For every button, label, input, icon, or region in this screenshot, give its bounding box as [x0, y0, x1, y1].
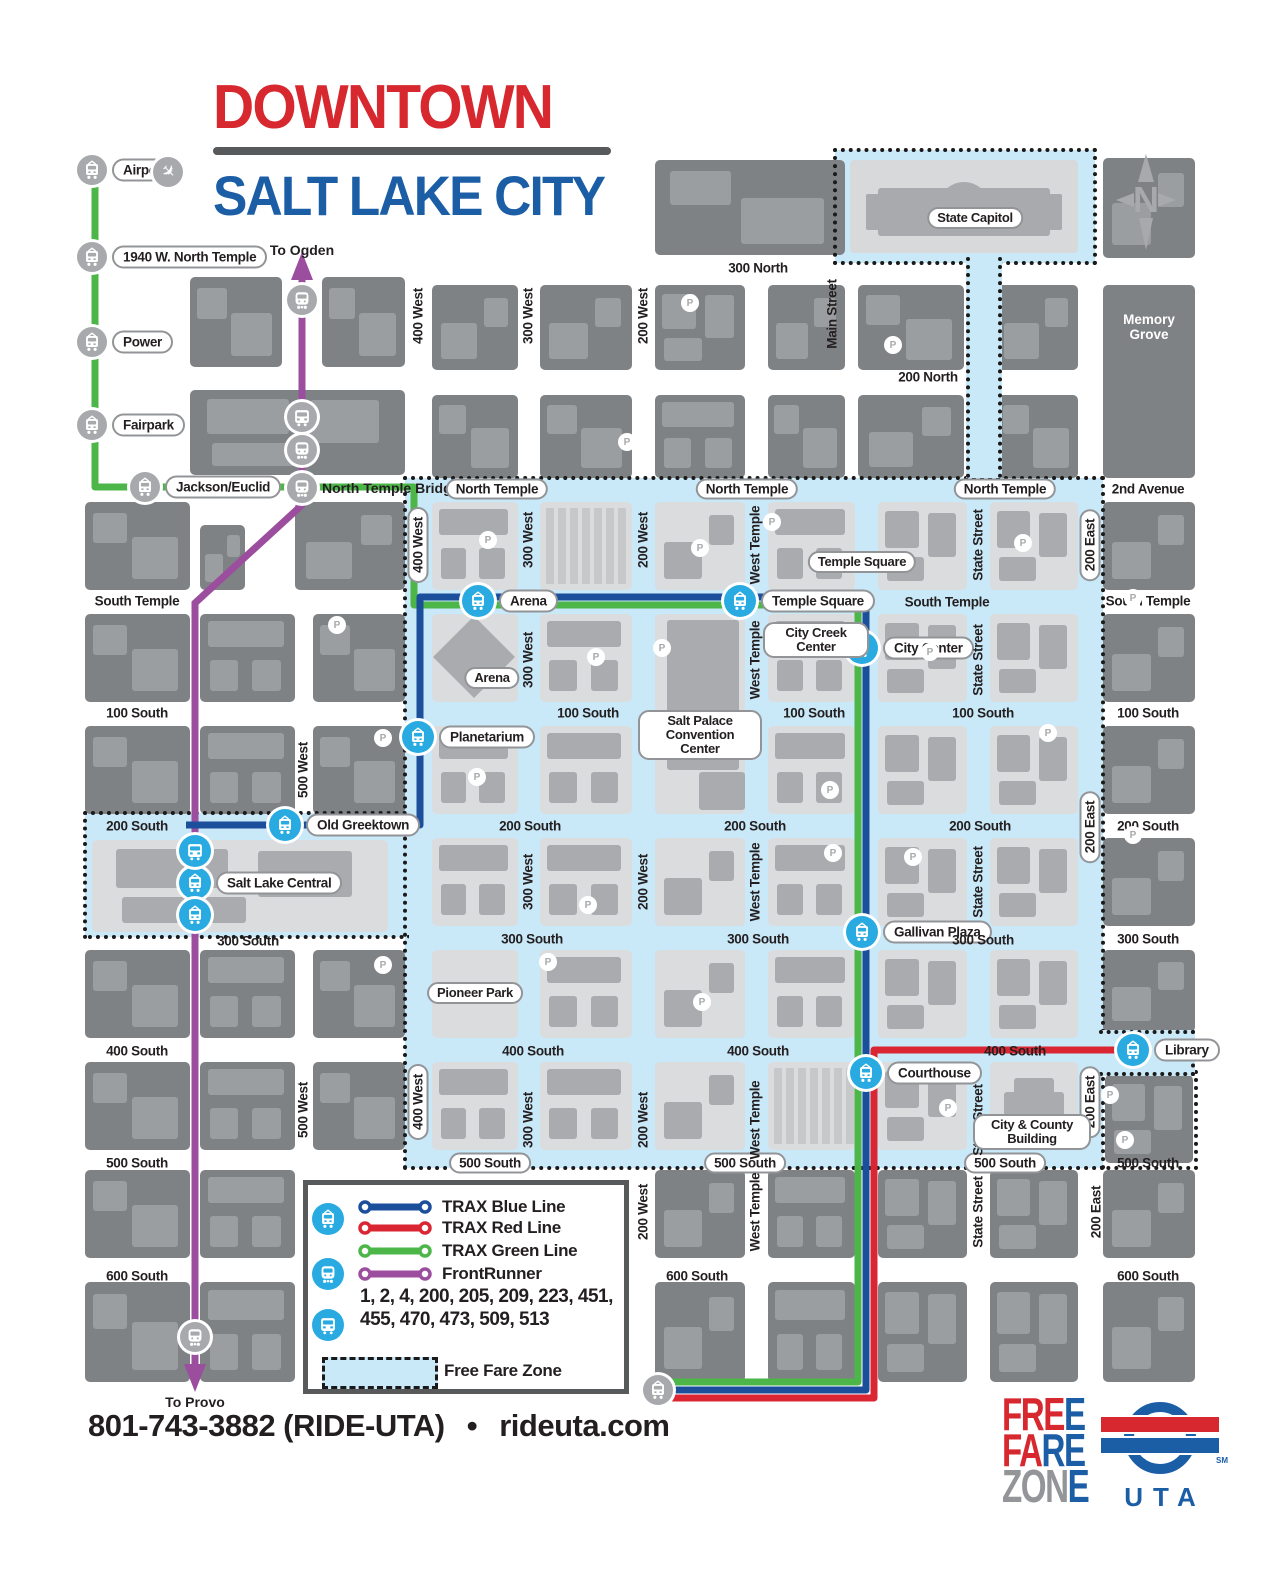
trax-station-icon: [77, 242, 107, 272]
trax-legend-icon: [312, 1203, 344, 1235]
legend-line-label: TRAX Red Line: [442, 1218, 561, 1238]
poi-icon: P: [691, 539, 709, 557]
street-label: State Street: [971, 624, 986, 695]
street-label: North Temple: [954, 479, 1056, 500]
poi-icon: P: [939, 1099, 957, 1117]
street-label: 400 West: [408, 507, 429, 583]
street-label: 500 West: [296, 742, 311, 798]
street-label: 400 West: [411, 288, 426, 344]
trax-station-icon: [77, 410, 107, 440]
footer-separator: •: [467, 1408, 477, 1443]
frr-legend-icon: [312, 1258, 344, 1290]
street-label: 300 West: [521, 288, 536, 344]
trax-station-icon: [77, 155, 107, 185]
map-title: DOWNTOWN SALT LAKE CITY: [213, 72, 638, 228]
street-label: 100 South: [106, 706, 168, 721]
poi-icon: P: [1116, 1131, 1134, 1149]
street-label: 300 West: [521, 512, 536, 568]
downtown-slc-transit-map: Memory Grove Airport1940 W. North Temple…: [0, 0, 1275, 1575]
legend-bus-routes: 1, 2, 4, 200, 205, 209, 223, 451, 455, 4…: [360, 1285, 622, 1331]
free-fare-zone-logo: FREEFAREZONE: [1002, 1396, 1088, 1504]
street-label: 2nd Avenue: [1112, 482, 1185, 497]
poi-icon: P: [539, 953, 557, 971]
legend-line-sample: [356, 1243, 434, 1259]
legend-line-label: TRAX Blue Line: [442, 1197, 565, 1217]
trax-station-icon: [402, 721, 434, 753]
poi-icon: P: [653, 639, 671, 657]
legend-row: FrontRunner: [356, 1264, 542, 1284]
street-label: 200 East: [1080, 791, 1101, 863]
poi-label: City & County Building: [973, 1114, 1091, 1150]
bus-station-icon: [179, 835, 211, 867]
street-label: South Temple: [1106, 594, 1191, 609]
website-link: rideuta.com: [499, 1408, 669, 1443]
street-label: North Temple: [446, 479, 548, 500]
trax-station-icon: [462, 585, 494, 617]
poi-icon: P: [681, 294, 699, 312]
uta-logo: [1100, 1398, 1220, 1482]
footer-contact: 801-743-3882 (RIDE-UTA) • rideuta.com: [88, 1408, 669, 1444]
poi-icon: P: [1124, 826, 1142, 844]
street-label: 500 South: [1117, 1156, 1179, 1171]
poi-icon: P: [587, 648, 605, 666]
poi-icon: P: [921, 643, 939, 661]
street-label: 300 West: [521, 854, 536, 910]
street-label: 100 South: [952, 706, 1014, 721]
station-label: North Temple Bridge: [322, 480, 459, 496]
station-label: Jackson/Euclid: [165, 476, 281, 499]
street-label: 200 West: [636, 1184, 651, 1240]
poi-label: Pioneer Park: [427, 982, 523, 1004]
street-label: West Temple: [748, 1081, 763, 1160]
station-label: 1940 W. North Temple: [112, 246, 267, 269]
street-label: 400 South: [502, 1044, 564, 1059]
street-label: 300 West: [521, 1092, 536, 1148]
poi-icon: P: [904, 848, 922, 866]
poi-label: Arena: [464, 667, 519, 689]
station-label: Arena: [499, 590, 558, 613]
to-ogden-label: To Ogden: [270, 242, 334, 258]
station-label: Fairpark: [112, 414, 185, 437]
poi-icon: P: [468, 768, 486, 786]
street-label: 500 South: [704, 1153, 786, 1174]
street-label: West Temple: [748, 843, 763, 922]
station-label: Old Greektown: [306, 814, 420, 837]
street-label: 600 South: [106, 1269, 168, 1284]
poi-icon: P: [479, 531, 497, 549]
title-downtown: DOWNTOWN: [213, 72, 604, 143]
poi-icon: P: [328, 616, 346, 634]
street-label: 100 South: [783, 706, 845, 721]
legend-row: TRAX Green Line: [356, 1241, 577, 1261]
trax-station-icon: [179, 867, 211, 899]
street-label: 200 East: [1089, 1186, 1104, 1238]
street-label: 500 West: [296, 1082, 311, 1138]
station-label: Courthouse: [887, 1062, 982, 1085]
title-divider: [213, 147, 611, 155]
street-label: Main Street: [825, 279, 840, 348]
street-label: 400 West: [408, 1064, 429, 1140]
poi-icon: P: [579, 896, 597, 914]
street-label: 600 South: [666, 1269, 728, 1284]
poi-icon: P: [693, 993, 711, 1011]
poi-label: Salt Palace Convention Center: [638, 710, 762, 760]
street-label: West Temple: [748, 1173, 763, 1252]
street-label: State Street: [971, 846, 986, 917]
poi-icon: P: [618, 433, 636, 451]
street-label: 600 South: [1117, 1269, 1179, 1284]
legend-line-sample: [356, 1220, 434, 1236]
street-label: State Street: [971, 1176, 986, 1247]
street-label: 300 South: [727, 932, 789, 947]
street-label: 300 South: [501, 932, 563, 947]
street-label: 500 South: [449, 1153, 531, 1174]
trax-station-icon: [1117, 1034, 1149, 1066]
trax-station-icon: [846, 916, 878, 948]
frr-station-icon: [180, 1322, 210, 1352]
compass-n-letter: N: [1133, 179, 1159, 220]
street-label: 200 East: [1080, 509, 1101, 581]
street-label: 200 West: [636, 288, 651, 344]
legend-line-label: TRAX Green Line: [442, 1241, 577, 1261]
bus-station-icon: [287, 402, 317, 432]
poi-label: State Capitol: [927, 207, 1023, 229]
legend: TRAX Blue Line TRAX Red Line TRAX Green …: [303, 1180, 629, 1394]
street-label: South Temple: [95, 594, 180, 609]
street-label: South Temple: [905, 595, 990, 610]
street-label: West Temple: [748, 506, 763, 585]
phone-number: 801-743-3882 (RIDE-UTA): [88, 1408, 445, 1443]
compass-north-icon: N: [1114, 152, 1178, 252]
poi-label: Temple Square: [808, 551, 916, 573]
airplane-icon: ✈: [153, 157, 183, 187]
street-label: 200 North: [898, 370, 958, 385]
frr-station-icon: [287, 285, 317, 315]
frr-station-icon: [287, 435, 317, 465]
street-label: 100 South: [1117, 706, 1179, 721]
street-label: 300 South: [217, 934, 279, 949]
poi-icon: P: [1039, 724, 1057, 742]
uta-sm-mark: SM: [1216, 1456, 1228, 1465]
poi-label: City Creek Center: [763, 622, 869, 658]
street-label: 400 South: [106, 1044, 168, 1059]
street-label: 200 South: [106, 819, 168, 834]
street-label: 200 South: [949, 819, 1011, 834]
street-label: State Street: [971, 509, 986, 580]
poi-icon: P: [884, 336, 902, 354]
station-label: Power: [112, 331, 173, 354]
trax-red-line: [658, 1050, 1131, 1398]
street-label: 200 South: [499, 819, 561, 834]
legend-row: TRAX Red Line: [356, 1218, 561, 1238]
station-label: Salt Lake Central: [216, 872, 342, 895]
street-label: 100 South: [557, 706, 619, 721]
street-label: West Temple: [748, 621, 763, 700]
trax-station-icon: [130, 472, 160, 502]
ffz-logo-word: ZONE: [1002, 1468, 1088, 1504]
trax-station-icon: [77, 327, 107, 357]
legend-line-label: FrontRunner: [442, 1264, 542, 1284]
poi-icon: P: [374, 956, 392, 974]
street-label: 200 West: [636, 1092, 651, 1148]
street-label: 300 South: [952, 933, 1014, 948]
street-label: 500 South: [106, 1156, 168, 1171]
trax-station-icon: [269, 809, 301, 841]
poi-icon: P: [374, 729, 392, 747]
free-fare-zone-swatch: [322, 1357, 438, 1389]
trax-station-icon: [643, 1375, 673, 1405]
street-label: 400 South: [727, 1044, 789, 1059]
title-salt-lake-city: SALT LAKE CITY: [213, 163, 604, 228]
poi-icon: P: [1014, 534, 1032, 552]
legend-row: TRAX Blue Line: [356, 1197, 565, 1217]
street-label: 300 South: [1117, 932, 1179, 947]
poi-icon: P: [824, 844, 842, 862]
uta-logo-text: UTA: [1100, 1482, 1220, 1513]
street-label: 400 South: [984, 1044, 1046, 1059]
poi-icon: P: [1124, 589, 1142, 607]
trax-station-icon: [179, 899, 211, 931]
trax-station-icon: [724, 585, 756, 617]
legend-line-sample: [356, 1199, 434, 1215]
street-label: 300 West: [521, 632, 536, 688]
frr-station-icon: [287, 473, 317, 503]
street-label: North Temple: [696, 479, 798, 500]
street-label: 300 North: [728, 261, 788, 276]
street-label: 200 West: [636, 854, 651, 910]
street-label: 200 South: [724, 819, 786, 834]
legend-line-sample: [356, 1266, 434, 1282]
station-label: Library: [1154, 1039, 1220, 1062]
legend-free-fare-label: Free Fare Zone: [444, 1361, 562, 1381]
to-provo-arrow: [184, 1364, 206, 1392]
bus-legend-icon: [312, 1309, 344, 1341]
trax-station-icon: [850, 1057, 882, 1089]
station-label: Planetarium: [439, 726, 535, 749]
poi-icon: P: [763, 513, 781, 531]
poi-icon: P: [821, 781, 839, 799]
poi-icon: P: [1101, 1086, 1119, 1104]
street-label: 200 West: [636, 512, 651, 568]
station-label: Temple Square: [761, 590, 875, 613]
